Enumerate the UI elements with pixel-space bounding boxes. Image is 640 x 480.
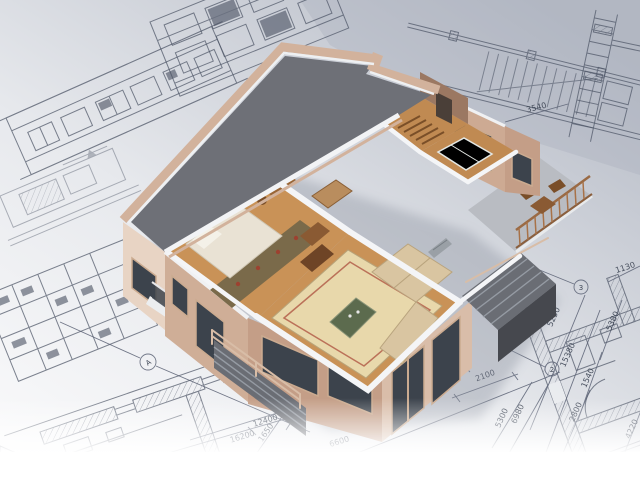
axis-marker-2: 2 [550, 366, 554, 374]
table-glass [348, 314, 351, 317]
axis-marker-3: 3 [579, 284, 583, 292]
render-canvas: 2 3 A 1650 16200 12400 2300 6600 2100 53… [0, 0, 640, 480]
bottom-margin [0, 452, 640, 480]
bottom-fade [0, 398, 640, 454]
architectural-render-scene: 2 3 A 1650 16200 12400 2300 6600 2100 53… [0, 0, 640, 480]
